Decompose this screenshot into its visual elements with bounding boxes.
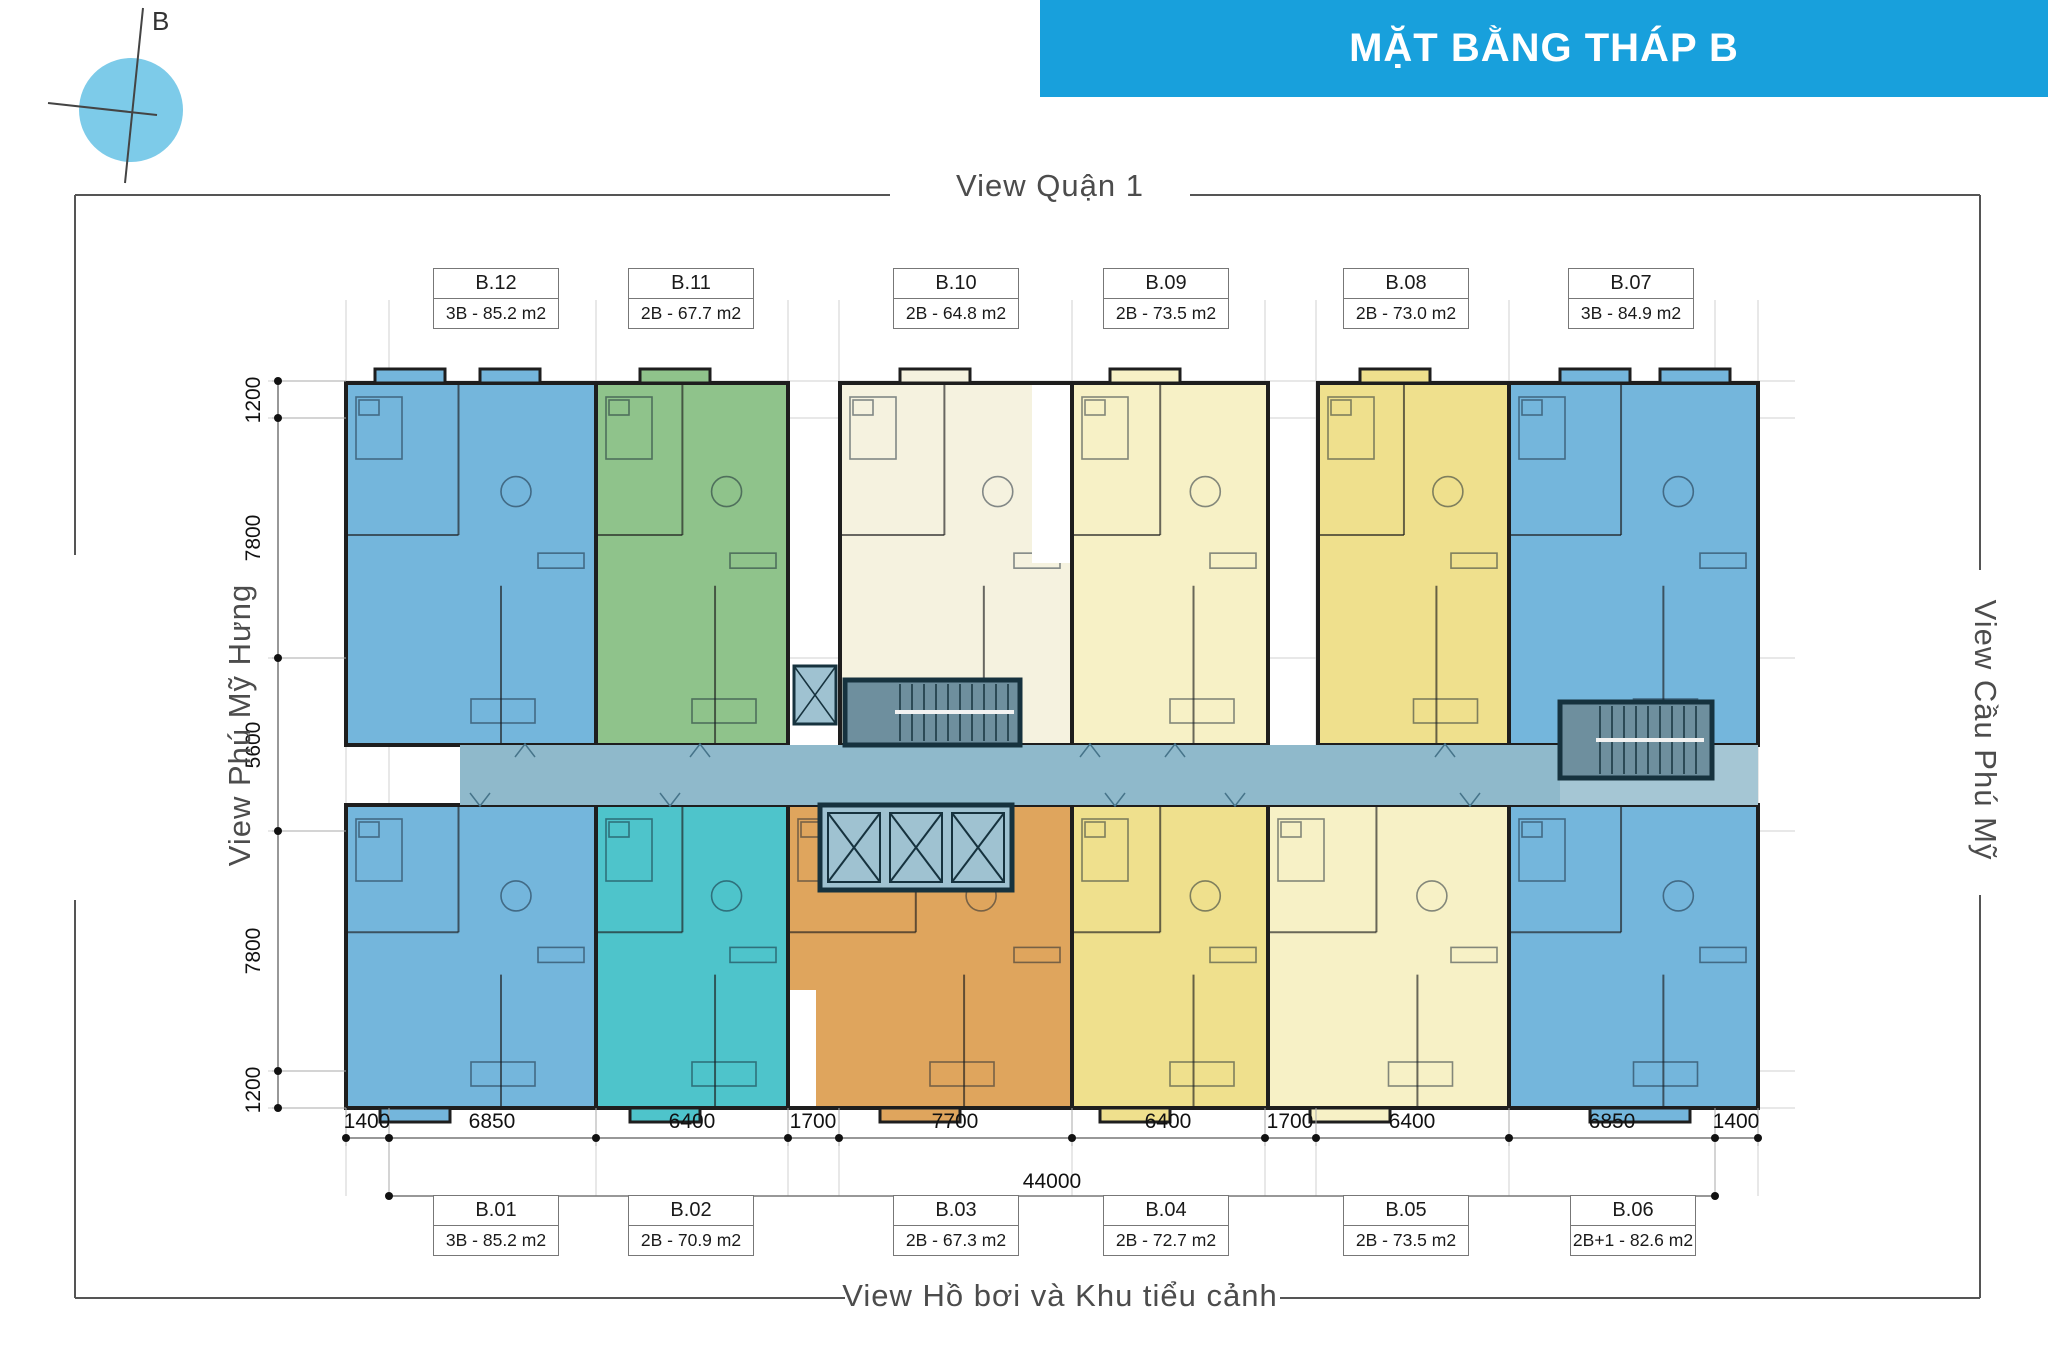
unit-b09-area — [1072, 383, 1268, 745]
dim-6850-right: 6850 — [1589, 1110, 1636, 1133]
dim-6400-left: 6400 — [669, 1110, 716, 1133]
unit-label-b06: B.062B+1 - 82.6 m2 — [1570, 1195, 1696, 1256]
unit-label-b07: B.073B - 84.9 m2 — [1568, 268, 1694, 329]
bottom-dimension-line: 1400 6850 6400 1700 7700 6400 1700 6400 … — [342, 1108, 1762, 1200]
dim-1700-right: 1700 — [1267, 1110, 1314, 1133]
dim-1200-top: 1200 — [242, 377, 265, 424]
dim-1700-left: 1700 — [790, 1110, 837, 1133]
compass-icon: B — [48, 6, 183, 183]
unit-b08-area — [1318, 383, 1509, 745]
unit-label-b03: B.032B - 67.3 m2 — [893, 1195, 1019, 1256]
unit-label-b12: B.123B - 85.2 m2 — [433, 268, 559, 329]
unit-label-b05: B.052B - 73.5 m2 — [1343, 1195, 1469, 1256]
unit-label-b11: B.112B - 67.7 m2 — [628, 268, 754, 329]
stair-core-right — [1560, 702, 1712, 778]
unit-label-b02: B.022B - 70.9 m2 — [628, 1195, 754, 1256]
elevator-core — [820, 805, 1012, 890]
unit-label-b09: B.092B - 73.5 m2 — [1103, 268, 1229, 329]
dim-1400-right: 1400 — [1713, 1110, 1760, 1133]
view-label-top: View Quận 1 — [900, 168, 1200, 204]
unit-label-b04: B.042B - 72.7 m2 — [1103, 1195, 1229, 1256]
dim-total-44000: 44000 — [1023, 1170, 1081, 1193]
view-label-bottom: View Hồ bơi và Khu tiểu cảnh — [810, 1278, 1310, 1314]
service-elevator — [794, 666, 836, 724]
dim-1400-left: 1400 — [344, 1110, 391, 1133]
unit-b07-area — [1509, 383, 1758, 745]
view-label-right: View Cầu Phú Mỹ — [1967, 520, 2003, 940]
page-title: MẶT BẰNG THÁP B — [1349, 26, 1739, 71]
compass-north-label: B — [152, 6, 169, 36]
stair-core-center — [845, 680, 1020, 745]
dim-6850-left: 6850 — [469, 1110, 516, 1133]
dim-6400-right: 6400 — [1389, 1110, 1436, 1133]
unit-label-b01: B.013B - 85.2 m2 — [433, 1195, 559, 1256]
view-label-left: View Phú Mỹ Hưng — [222, 515, 258, 935]
title-banner: MẶT BẰNG THÁP B — [1040, 0, 2048, 97]
dim-1200-bottom: 1200 — [242, 1067, 265, 1114]
unit-b12-area — [346, 383, 596, 745]
unit-b11-area — [596, 383, 788, 745]
dim-6400-mid: 6400 — [1145, 1110, 1192, 1133]
unit-label-b08: B.082B - 73.0 m2 — [1343, 268, 1469, 329]
unit-label-b10: B.102B - 64.8 m2 — [893, 268, 1019, 329]
dim-7700: 7700 — [932, 1110, 979, 1133]
floorplan-page: 1400 6850 6400 1700 7700 6400 1700 6400 … — [0, 0, 2048, 1347]
